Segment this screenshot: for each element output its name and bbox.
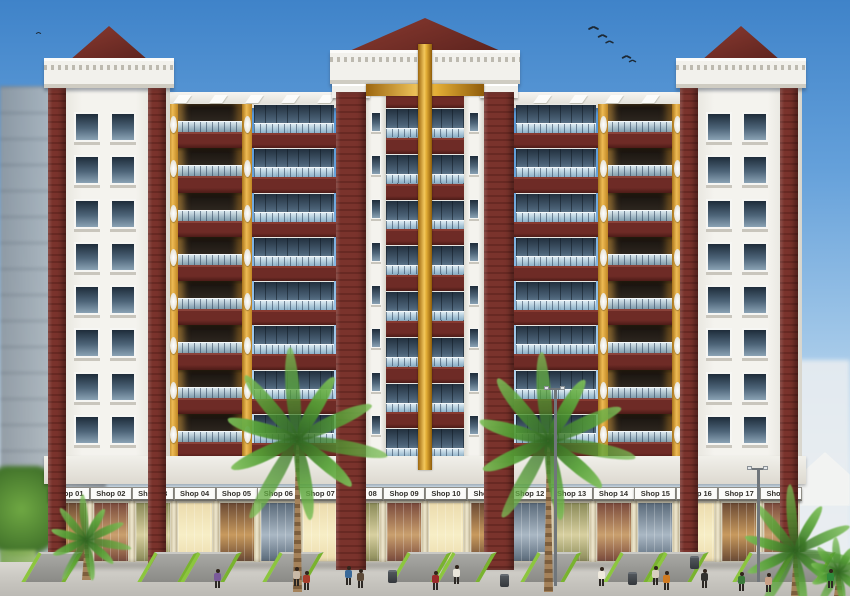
shop-sign: Shop 10 [425, 487, 467, 501]
balcony-railing [606, 254, 674, 265]
person [356, 569, 365, 588]
lamp-head [544, 386, 549, 390]
tower-cornice [44, 58, 174, 88]
apartment-window [742, 242, 768, 272]
apartment-window [742, 415, 768, 445]
person-legs [346, 578, 351, 585]
apartment-window [110, 199, 136, 229]
architectural-rendering-scene: Shop 01Shop 02Shop 03Shop 04Shop 05Shop … [0, 0, 850, 596]
apartment-window [742, 328, 768, 358]
gold-pier [242, 104, 252, 464]
apartment-window [742, 285, 768, 315]
shop-sign: Shop 02 [90, 487, 132, 501]
apartment-window [742, 112, 768, 142]
balcony-railing [176, 254, 244, 265]
person [597, 567, 606, 586]
apartment-window [469, 155, 479, 175]
person-body [214, 573, 221, 581]
apartment-window [469, 242, 479, 262]
person-legs [215, 581, 220, 588]
person [302, 571, 311, 590]
person-legs [304, 583, 309, 590]
pier-medallion [600, 205, 607, 222]
balcony-railing [254, 300, 334, 310]
bird [605, 40, 614, 45]
pier-medallion [244, 160, 251, 177]
apartment-window [110, 328, 136, 358]
balcony-slab [602, 221, 678, 237]
spandrel-band [514, 133, 598, 148]
apartment-window [742, 372, 768, 402]
tower-cornice [676, 58, 806, 88]
spandrel-band [514, 266, 598, 281]
apartment-window [110, 372, 136, 402]
apartment-window [74, 199, 100, 229]
person-body [432, 575, 439, 583]
apartment-window [469, 112, 479, 132]
pier-medallion [170, 337, 177, 354]
balcony-railing [176, 431, 244, 442]
pier-medallion [600, 249, 607, 266]
tower-pediment [70, 26, 148, 60]
person-body [765, 577, 772, 585]
apartment-window [74, 242, 100, 272]
person-body [453, 569, 460, 577]
pier-medallion [600, 337, 607, 354]
pier-medallion [244, 293, 251, 310]
person-body [663, 575, 670, 583]
shop-sign: Shop 14 [593, 487, 635, 501]
balcony-railing [254, 212, 334, 222]
person-body [652, 570, 659, 578]
bird-wing [38, 32, 41, 34]
pier-medallion [170, 116, 177, 133]
person [431, 571, 440, 590]
balcony-railing [606, 121, 674, 132]
apartment-window [74, 285, 100, 315]
person [737, 572, 746, 591]
pier-medallion [170, 205, 177, 222]
apartment-window [74, 328, 100, 358]
apartment-window [110, 285, 136, 315]
person-body [701, 573, 708, 581]
apartment-window [706, 112, 732, 142]
pier-medallion [600, 116, 607, 133]
person-legs [454, 577, 459, 584]
person [344, 566, 353, 585]
balcony-railing [176, 298, 244, 309]
apartment-window [74, 415, 100, 445]
apartment-window [371, 199, 381, 219]
apartment-window [742, 155, 768, 185]
person [213, 569, 222, 588]
lamp-head [747, 466, 752, 470]
balcony-slab [172, 353, 248, 369]
person-legs [664, 583, 669, 590]
person-body [293, 571, 300, 579]
balcony-railing [606, 298, 674, 309]
balcony-railing [606, 387, 674, 398]
shop-sign: Shop 17 [718, 487, 760, 501]
bird [629, 59, 637, 63]
balcony-railing [516, 212, 596, 222]
bird-wing [602, 34, 608, 38]
apartment-window [371, 242, 381, 262]
spandrel-band [252, 133, 336, 148]
apartment-window [110, 155, 136, 185]
apartment-window [742, 199, 768, 229]
person-legs [766, 585, 771, 592]
apartment-window [706, 285, 732, 315]
shop-pilaster [590, 501, 596, 563]
balcony-railing [176, 121, 244, 132]
balcony-railing [254, 256, 334, 266]
balcony-slab [172, 132, 248, 148]
pier-medallion [170, 293, 177, 310]
bird [598, 33, 608, 38]
person-body [303, 575, 310, 583]
tower-pediment [702, 26, 780, 60]
person [700, 569, 709, 588]
apartment-window [371, 415, 381, 435]
person-legs [828, 581, 833, 588]
trash-bin [690, 556, 699, 569]
apartment-window [706, 328, 732, 358]
apartment-window [110, 242, 136, 272]
apartment-window [469, 415, 479, 435]
shop-pilaster [380, 501, 386, 563]
balcony-railing [254, 167, 334, 177]
person [452, 565, 461, 584]
apartment-window [706, 372, 732, 402]
balcony-railing [516, 123, 596, 133]
spandrel-band [252, 266, 336, 281]
shop-pilaster [129, 501, 135, 563]
balcony-railing [606, 210, 674, 221]
balcony-railing [516, 344, 596, 354]
balcony-railing [176, 342, 244, 353]
bird-wing [593, 26, 599, 30]
light-pole [757, 468, 760, 582]
balcony-railing [606, 431, 674, 442]
person [292, 567, 301, 586]
apartment-window [469, 328, 479, 348]
balcony-railing [516, 167, 596, 177]
pier-medallion [600, 382, 607, 399]
spandrel-band [252, 222, 336, 237]
brick-pillar [148, 88, 166, 570]
person-body [598, 571, 605, 579]
balcony-slab [172, 176, 248, 192]
apartment-window [74, 112, 100, 142]
pier-medallion [244, 249, 251, 266]
bird-wing [632, 59, 636, 62]
apartment-window [706, 415, 732, 445]
balcony-railing [516, 256, 596, 266]
person-body [345, 570, 352, 578]
apartment-window [110, 415, 136, 445]
balcony-slab [172, 221, 248, 237]
balcony-railing [254, 344, 334, 354]
person [826, 569, 835, 588]
pier-medallion [244, 205, 251, 222]
balcony-slab [602, 132, 678, 148]
person [764, 573, 773, 592]
pier-medallion [170, 426, 177, 443]
apartment-window [371, 285, 381, 305]
balcony-railing [516, 300, 596, 310]
apartment-window [371, 372, 381, 392]
balcony-railing [176, 210, 244, 221]
person-legs [739, 584, 744, 591]
person-body [738, 576, 745, 584]
spandrel-band [514, 354, 598, 369]
spandrel-band [514, 310, 598, 325]
balcony-railing [254, 123, 334, 133]
person-legs [433, 583, 438, 590]
bird [36, 32, 42, 35]
pier-medallion [244, 116, 251, 133]
person [651, 566, 660, 585]
apartment-window [469, 285, 479, 305]
balcony-railing [606, 342, 674, 353]
trash-bin [628, 572, 637, 585]
gold-stripe-vertical [418, 44, 432, 470]
balcony-slab [172, 309, 248, 325]
balcony-slab [602, 309, 678, 325]
balcony-slab [602, 353, 678, 369]
apartment-window [371, 155, 381, 175]
spandrel-band [514, 177, 598, 192]
balcony-railing [606, 165, 674, 176]
pier-medallion [600, 426, 607, 443]
inner-wall-strip [464, 92, 484, 458]
trash-bin [388, 570, 397, 583]
shop-sign: Shop 15 [634, 487, 676, 501]
light-pole [554, 388, 557, 586]
apartment-window [706, 199, 732, 229]
brick-pillar [680, 88, 698, 570]
apartment-window [74, 372, 100, 402]
apartment-window [706, 242, 732, 272]
bird [588, 25, 599, 31]
person-legs [358, 581, 363, 588]
person-legs [294, 579, 299, 586]
balcony-slab [172, 398, 248, 414]
balcony-slab [172, 265, 248, 281]
bird-wing [609, 40, 614, 44]
spandrel-band [514, 222, 598, 237]
spandrel-band [252, 310, 336, 325]
pier-medallion [170, 160, 177, 177]
person-legs [653, 578, 658, 585]
apartment-window [706, 155, 732, 185]
lamp-head [560, 386, 565, 390]
person [662, 571, 671, 590]
brick-pillar [336, 92, 366, 570]
shop-sign: Shop 04 [174, 487, 216, 501]
person-body [357, 573, 364, 581]
pier-medallion [600, 293, 607, 310]
pier-medallion [600, 160, 607, 177]
person-legs [599, 579, 604, 586]
balcony-slab [602, 265, 678, 281]
pier-medallion [170, 382, 177, 399]
trash-bin [500, 574, 509, 587]
shop-sign: Shop 09 [383, 487, 425, 501]
pier-medallion [170, 249, 177, 266]
apartment-window [469, 199, 479, 219]
apartment-window [371, 112, 381, 132]
pier-medallion [244, 337, 251, 354]
apartment-window [74, 155, 100, 185]
spandrel-band [252, 177, 336, 192]
balcony-slab [602, 176, 678, 192]
apartment-window [110, 112, 136, 142]
shop-sign: Shop 05 [216, 487, 258, 501]
balcony-railing [176, 165, 244, 176]
apartment-window [469, 372, 479, 392]
brick-pillar [48, 88, 66, 570]
balcony-railing [176, 387, 244, 398]
lamp-head [763, 466, 768, 470]
shop-pilaster [715, 501, 721, 563]
person-body [827, 573, 834, 581]
apartment-window [371, 328, 381, 348]
person-legs [702, 581, 707, 588]
